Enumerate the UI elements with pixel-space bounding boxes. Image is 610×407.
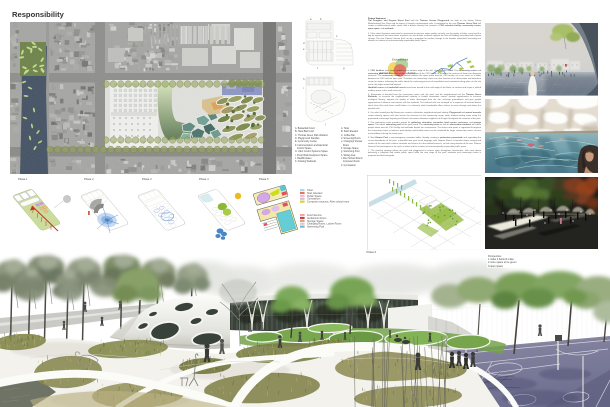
svg-text:Computer resource, After schoo: Computer resource, After school room — [307, 201, 349, 204]
svg-text:a: a — [310, 18, 312, 21]
svg-text:i: i — [303, 86, 304, 90]
svg-text:d: d — [303, 41, 305, 45]
svg-text:Swimming Pool: Swimming Pool — [307, 226, 325, 229]
svg-text:f: f — [317, 66, 318, 70]
svg-text:g: g — [343, 67, 345, 70]
svg-text:h: h — [303, 77, 305, 81]
svg-text:Environmental: Environmental — [392, 59, 408, 62]
svg-text:j: j — [324, 122, 326, 126]
svg-text:e: e — [303, 48, 305, 51]
svg-text:b: b — [320, 17, 322, 21]
svg-text:c: c — [336, 35, 338, 38]
svg-text:Society: Society — [408, 72, 417, 75]
svg-text:Economic: Economic — [380, 72, 392, 75]
